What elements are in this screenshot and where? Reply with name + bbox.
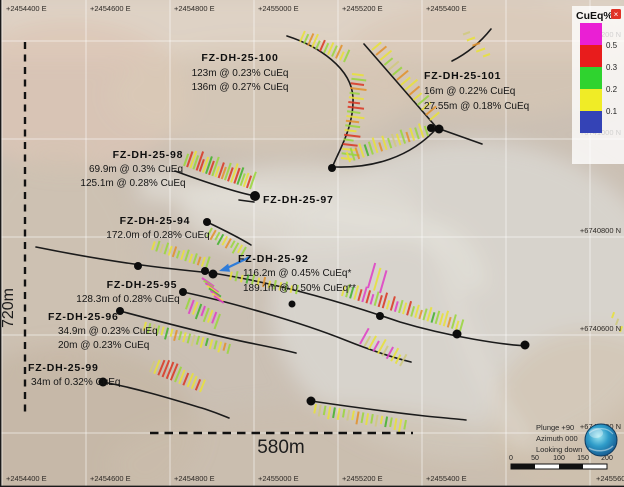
legend-tick-label: 0.1 xyxy=(606,107,618,116)
legend-color-block xyxy=(580,45,602,67)
fz-dh-25-95-label: FZ-DH-25-95 xyxy=(107,279,178,291)
easting-label-bottom: +2454800 E xyxy=(174,474,215,483)
unlabeled-south-hole-collar xyxy=(307,397,316,406)
fz-dh-25-95-collar xyxy=(179,288,187,296)
fz-dh-25-98-interval: 69.9m @ 0.3% CuEq xyxy=(89,164,183,175)
fz-dh-25-96-interval: 20m @ 0.23% CuEq xyxy=(58,340,149,351)
fz-dh-25-99-label: FZ-DH-25-99 xyxy=(28,362,99,374)
fz-dh-25-94-label: FZ-DH-25-94 xyxy=(120,215,191,227)
scale-bar-tick: 0 xyxy=(509,455,513,462)
fz-dh-25-100-interval: 136m @ 0.27% CuEq xyxy=(192,82,289,93)
fz-dh-25-92-collar xyxy=(521,341,530,350)
legend-color-block xyxy=(580,23,602,45)
easting-label-top: +2455000 E xyxy=(258,4,299,13)
easting-label-bottom: +2454400 E xyxy=(6,474,47,483)
northing-label: +6740800 N xyxy=(580,226,621,235)
grade-bar xyxy=(350,93,360,94)
easting-label-bottom: +2455000 E xyxy=(258,474,299,483)
fz-dh-25-94-interval: 172.0m of 0.28% CuEq xyxy=(106,230,209,241)
legend-tick-label: 0.3 xyxy=(606,63,618,72)
fz-dh-25-92-interval: 189.1m @ 0.50% CuEq** xyxy=(243,283,356,294)
fz-dh-25-100-label: FZ-DH-25-100 xyxy=(201,52,278,64)
fz-dh-25-92-collar xyxy=(209,270,218,279)
easting-label-top: +2454800 E xyxy=(174,4,215,13)
fz-dh-25-92-label: FZ-DH-25-92 xyxy=(238,253,309,265)
scale-bar-tick: 150 xyxy=(577,455,589,462)
scale-bar-tick: 50 xyxy=(531,455,539,462)
legend-title: CuEq% xyxy=(576,10,613,22)
easting-label-bottom: +2455200 E xyxy=(342,474,383,483)
drill-plan-map: FZ-DH-25-100123m @ 0.23% CuEq136m @ 0.27… xyxy=(0,0,624,487)
fz-dh-25-100-interval: 123m @ 0.23% CuEq xyxy=(192,68,289,79)
view-info-line: Azimuth 000 xyxy=(536,434,578,443)
scale-bar-tick: 100 xyxy=(553,455,565,462)
fz-dh-25-101-label: FZ-DH-25-101 xyxy=(424,70,501,82)
fz-dh-25-97-collar xyxy=(250,191,260,201)
fz-dh-25-92-interval: 116.2m @ 0.45% CuEq* xyxy=(243,268,351,279)
easting-label-top: +2455400 E xyxy=(426,4,467,13)
legend-color-block xyxy=(580,89,602,111)
fz-dh-25-97-label: FZ-DH-25-97 xyxy=(263,194,334,206)
easting-label-bottom: +2455400 E xyxy=(426,474,467,483)
vertical-scale-label: 720m xyxy=(0,288,17,328)
cueq-legend: CuEq% × 0.50.30.20.1 xyxy=(572,6,624,164)
grade-bar xyxy=(345,130,357,131)
grade-bar xyxy=(348,102,360,103)
fz-dh-25-95-interval: 128.3m of 0.28% CuEq xyxy=(76,294,179,305)
easting-label-top: +2455200 E xyxy=(342,4,383,13)
fz-dh-25-92-collar xyxy=(453,330,462,339)
legend-color-block xyxy=(580,67,602,89)
map-canvas: FZ-DH-25-100123m @ 0.23% CuEq136m @ 0.27… xyxy=(0,0,624,487)
fz-dh-25-98-label: FZ-DH-25-98 xyxy=(113,149,184,161)
view-info-line: Looking down xyxy=(536,445,582,454)
grade-bar xyxy=(343,409,344,417)
easting-label-top: +2454600 E xyxy=(90,4,131,13)
fz-dh-25-99-interval: 34m of 0.32% CuEq xyxy=(31,377,121,388)
legend-tick-label: 0.5 xyxy=(606,41,618,50)
fz-dh-25-92-collar xyxy=(201,267,209,275)
easting-label-bottom: +2455600 E xyxy=(596,474,624,483)
easting-label-bottom: +2454600 E xyxy=(90,474,131,483)
scale-bar-segment xyxy=(511,464,535,469)
legend-close-glyph[interactable]: × xyxy=(614,10,619,19)
easting-label-top: +2454400 E xyxy=(6,4,47,13)
fz-dh-25-92-collar xyxy=(289,301,296,308)
fz-dh-25-98-interval: 125.1m @ 0.28% CuEq xyxy=(80,178,185,189)
fz-dh-25-92-collar xyxy=(134,262,142,270)
fz-dh-25-94-collar xyxy=(203,218,211,226)
fz-dh-25-101-collar xyxy=(427,124,435,132)
northing-label: +6740600 N xyxy=(580,324,621,333)
fz-dh-25-92-collar xyxy=(376,312,384,320)
view-info-line: Plunge +90 xyxy=(536,423,574,432)
horizontal-scale-label: 580m xyxy=(257,437,305,458)
grade-bar xyxy=(352,74,364,75)
satellite-background xyxy=(0,0,624,487)
fz-dh-25-96-interval: 34.9m @ 0.23% CuEq xyxy=(58,326,158,337)
fz-dh-25-101-interval: 16m @ 0.22% CuEq xyxy=(424,86,515,97)
fz-dh-25-101-collar xyxy=(435,125,444,134)
legend-color-block xyxy=(580,111,602,133)
fz-dh-25-96-label: FZ-DH-25-96 xyxy=(48,311,119,323)
fz-dh-25-101-interval: 27.55m @ 0.18% CuEq xyxy=(424,101,529,112)
grade-bar xyxy=(343,139,353,140)
scale-bar-segment xyxy=(559,464,583,469)
legend-tick-label: 0.2 xyxy=(606,85,618,94)
globe-icon xyxy=(585,424,617,456)
grade-bar xyxy=(341,158,353,159)
fz-dh-25-100-collar xyxy=(328,164,336,172)
